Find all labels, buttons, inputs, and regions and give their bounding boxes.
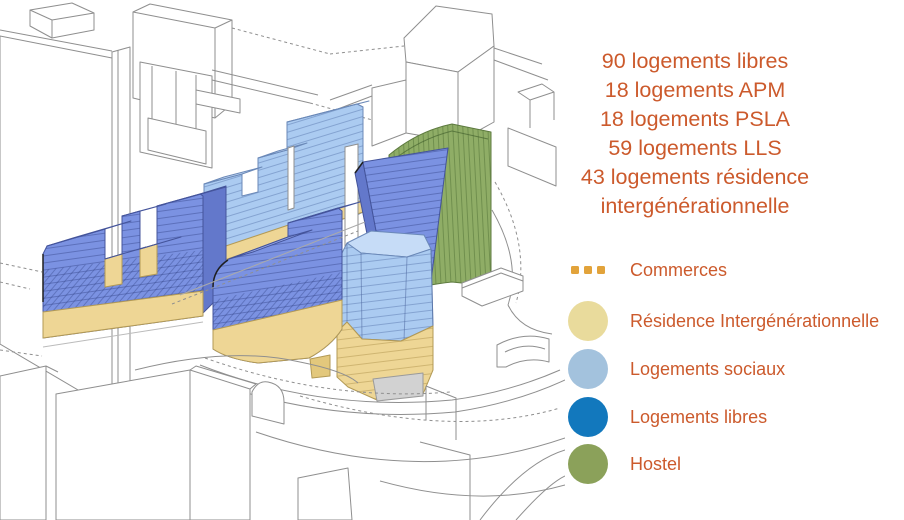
stats-line: 90 logements libres <box>545 47 845 76</box>
context-box-bottomleft-a <box>0 366 46 520</box>
commerces-dot <box>597 266 605 274</box>
stats-line: 43 logements résidence <box>545 163 845 192</box>
context-wall-left <box>0 36 112 410</box>
legend-row-commerces: Commerces <box>568 250 727 290</box>
context-box-topleft <box>30 3 94 38</box>
legend-label-sociaux: Logements sociaux <box>630 359 785 380</box>
libres-swatch <box>568 397 608 437</box>
legend-label-libres: Logements libres <box>630 407 767 428</box>
housing-stats: 90 logements libres 18 logements APM 18 … <box>545 47 845 221</box>
stats-line: intergénérationnelle <box>545 192 845 221</box>
commerces-dot <box>571 266 579 274</box>
sociaux-swatch <box>568 349 608 389</box>
legend-row-sociaux: Logements sociaux <box>568 349 785 389</box>
slide-canvas: 90 logements libres 18 logements APM 18 … <box>0 0 904 520</box>
legend-label-residence: Résidence Intergénérationnelle <box>630 311 879 332</box>
legend-label-commerces: Commerces <box>630 260 727 281</box>
residence-swatch <box>568 301 608 341</box>
hostel-swatch <box>568 444 608 484</box>
legend-row-hostel: Hostel <box>568 444 681 484</box>
context-box-bottomcenter <box>298 468 352 520</box>
context-box-bottomleft-c <box>190 366 256 520</box>
context-box-bottomleft-b <box>56 370 190 520</box>
commerces-dots-swatch <box>568 266 608 274</box>
legend-row-residence: Résidence Intergénérationnelle <box>568 301 879 341</box>
legend: Commerces Résidence Intergénérationnelle… <box>568 248 898 488</box>
legend-label-hostel: Hostel <box>630 454 681 475</box>
stats-line: 18 logements APM <box>545 76 845 105</box>
site-massing-diagram <box>0 0 565 520</box>
context-kiosk <box>252 382 284 424</box>
stats-line: 59 logements LLS <box>545 134 845 163</box>
context-slit-tower <box>345 144 358 248</box>
legend-row-libres: Logements libres <box>568 397 767 437</box>
stats-line: 18 logements PSLA <box>545 105 845 134</box>
building-tower-sociaux-residence <box>337 231 433 401</box>
commerces-dot <box>584 266 592 274</box>
